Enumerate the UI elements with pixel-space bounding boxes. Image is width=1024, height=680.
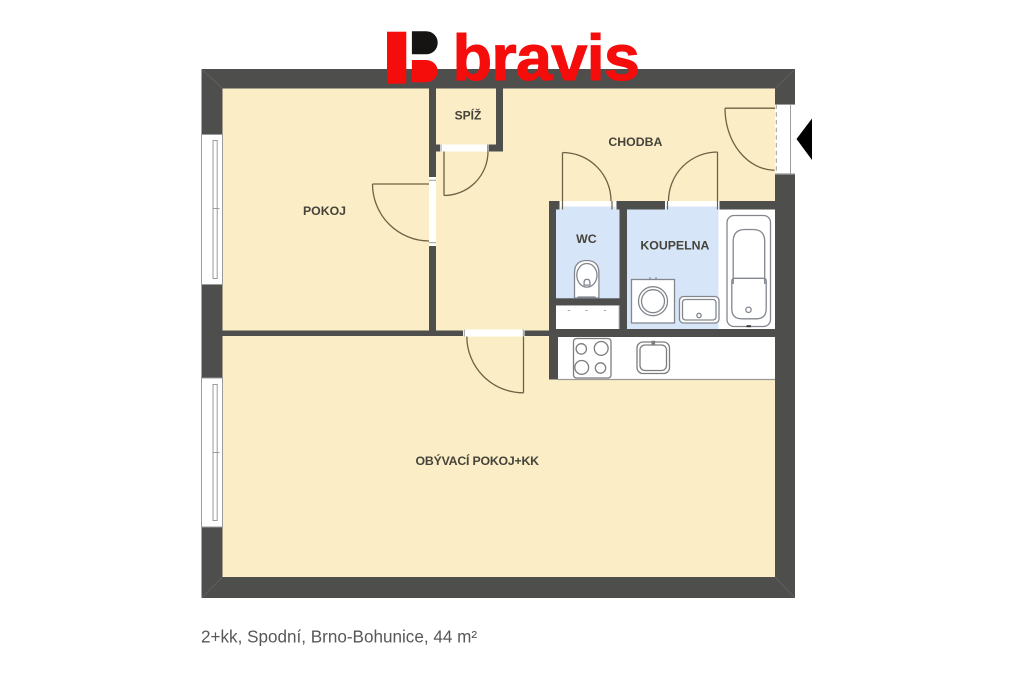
svg-text:KOUPELNA: KOUPELNA [640,239,709,253]
svg-text:POKOJ: POKOJ [303,204,346,218]
svg-text:CHODBA: CHODBA [608,135,662,149]
svg-text:2+kk, Spodní, Brno-Bohunice, 4: 2+kk, Spodní, Brno-Bohunice, 44 m² [201,627,477,646]
svg-text:OBÝVACÍ POKOJ+KK: OBÝVACÍ POKOJ+KK [416,453,540,468]
svg-text:bravis: bravis [453,21,640,94]
svg-text:WC: WC [576,232,597,246]
svg-text:SPÍŽ: SPÍŽ [455,108,482,123]
